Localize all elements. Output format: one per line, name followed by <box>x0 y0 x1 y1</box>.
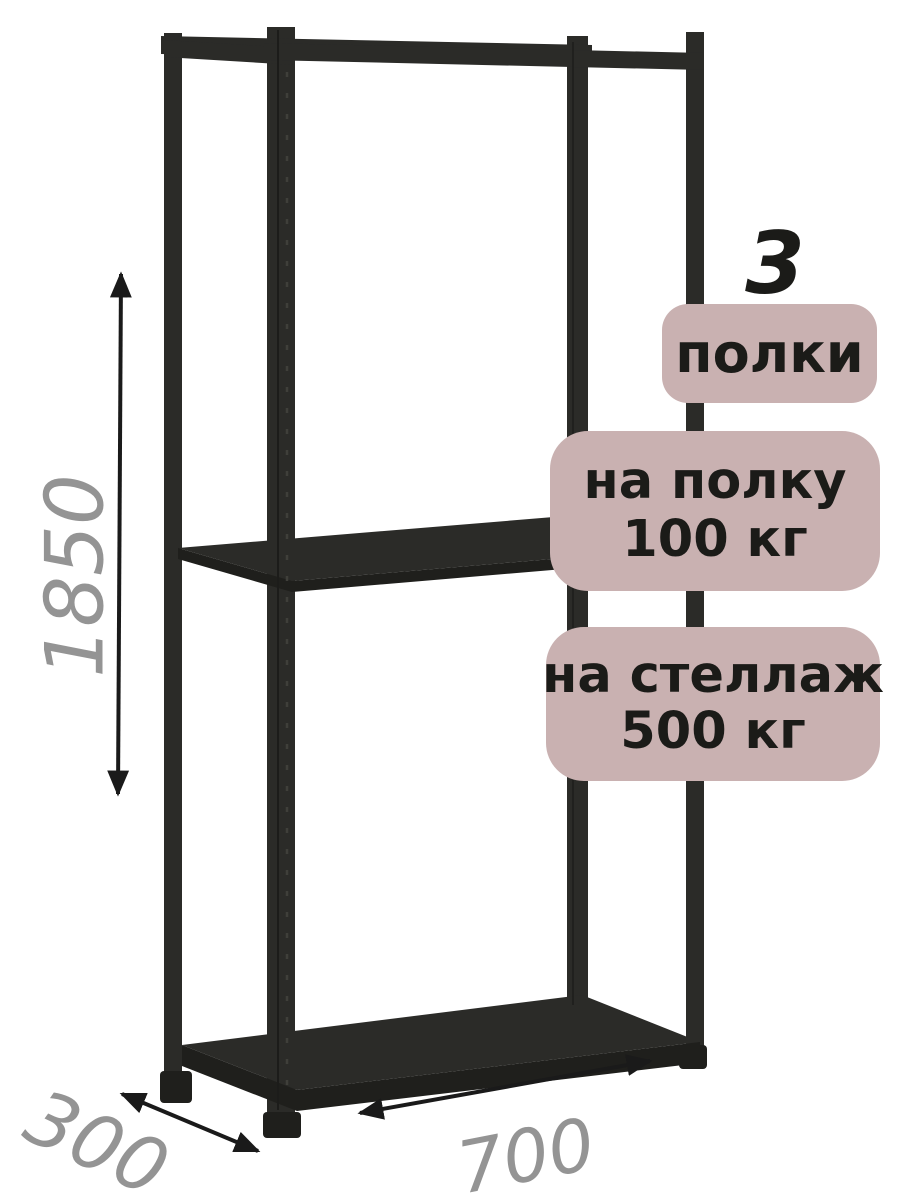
depth-dimension-label: 300 <box>12 1072 181 1200</box>
product-image: 1850 300 700 3 полки на полку 100 кг на … <box>0 0 900 1200</box>
width-dimension-label: 700 <box>451 1102 602 1200</box>
per-shelf-load-line1: на полку <box>584 453 847 511</box>
shelf-rack-illustration: 1850 300 700 <box>0 0 900 1200</box>
shelf-count-label: полки <box>675 322 863 385</box>
rack-foot-front-right <box>679 1045 707 1069</box>
rack-foot-front-left <box>263 1112 301 1138</box>
per-rack-load-badge: на стеллаж 500 кг <box>546 627 880 781</box>
rack-foot-back-left <box>160 1071 192 1103</box>
per-shelf-load-badge: на полку 100 кг <box>550 431 880 591</box>
height-dimension-label: 1850 <box>29 474 122 678</box>
per-rack-load-line2: 500 кг <box>620 704 805 760</box>
shelf-count-badge: полки <box>662 304 877 403</box>
shelf-count-number: 3 <box>722 216 828 312</box>
rack-post-front-left <box>267 27 295 1116</box>
per-shelf-load-line2: 100 кг <box>622 511 807 569</box>
per-rack-load-line1: на стеллаж <box>542 648 884 704</box>
